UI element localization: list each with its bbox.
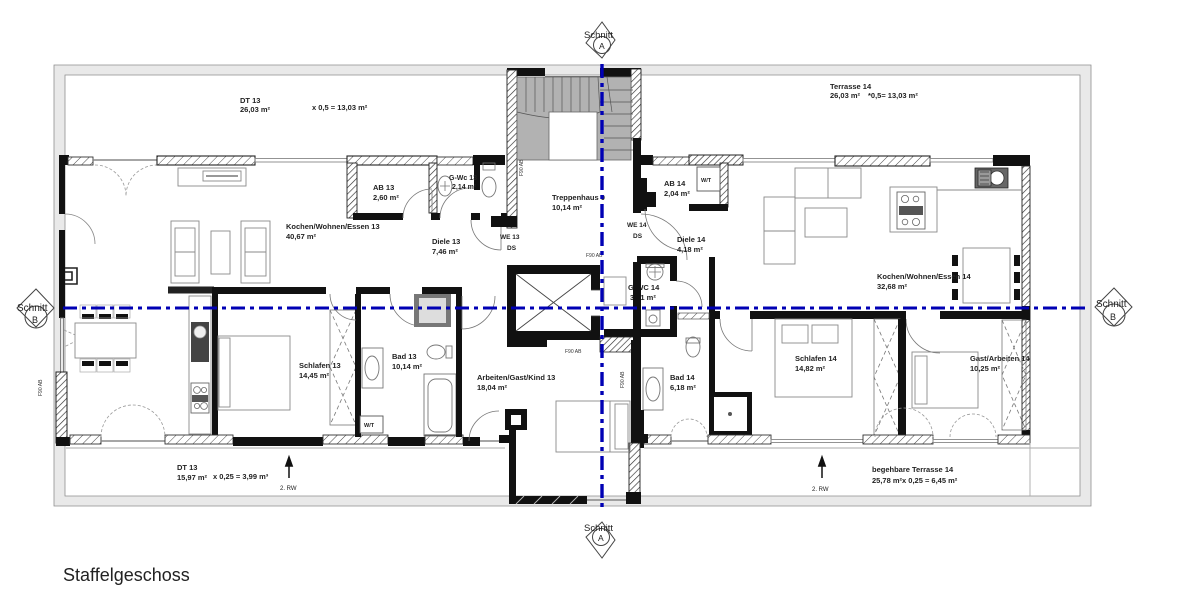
svg-text:Staffelgeschoss: Staffelgeschoss: [63, 565, 190, 585]
svg-text:7,46 m²: 7,46 m²: [432, 247, 458, 256]
svg-text:Diele 14: Diele 14: [677, 235, 706, 244]
svg-text:B: B: [32, 315, 38, 325]
svg-text:4,18 m²: 4,18 m²: [677, 245, 703, 254]
svg-text:Kochen/Wohnen/Essen 14: Kochen/Wohnen/Essen 14: [877, 272, 971, 281]
svg-text:G-WC 14: G-WC 14: [628, 283, 660, 292]
svg-text:Treppenhaus 0: Treppenhaus 0: [552, 193, 605, 202]
svg-text:32,68 m²: 32,68 m²: [877, 282, 908, 291]
svg-text:Schlafen 14: Schlafen 14: [795, 354, 838, 363]
svg-text:15,97 m²: 15,97 m²: [177, 473, 208, 482]
svg-text:2,04 m²: 2,04 m²: [664, 189, 690, 198]
svg-text:DS: DS: [507, 245, 517, 252]
svg-text:Arbeiten/Gast/Kind 13: Arbeiten/Gast/Kind 13: [477, 373, 555, 382]
svg-text:A: A: [598, 533, 604, 543]
svg-text:Gast/Arbeiten 14: Gast/Arbeiten 14: [970, 354, 1030, 363]
svg-text:26,03 m²: 26,03 m²: [240, 105, 271, 114]
svg-text:18,04 m²: 18,04 m²: [477, 383, 508, 392]
svg-text:x 0,5 = 13,03 m²: x 0,5 = 13,03 m²: [312, 103, 368, 112]
svg-text:2. RW: 2. RW: [812, 487, 829, 493]
svg-text:10,14 m²: 10,14 m²: [392, 362, 423, 371]
svg-text:A: A: [599, 41, 605, 51]
svg-text:W/T: W/T: [701, 178, 712, 184]
svg-text:25,78 m²x 0,25 = 6,45 m²: 25,78 m²x 0,25 = 6,45 m²: [872, 476, 958, 485]
svg-text:W/T: W/T: [364, 423, 375, 429]
svg-text:F90 AB: F90 AB: [38, 379, 44, 396]
svg-text:26,03 m²: 26,03 m²: [830, 91, 861, 100]
svg-text:2,14 m²: 2,14 m²: [452, 184, 477, 191]
svg-text:10,14 m²: 10,14 m²: [552, 203, 583, 212]
svg-text:F90 AB: F90 AB: [565, 349, 582, 355]
svg-text:Schnitt: Schnitt: [584, 30, 613, 41]
svg-text:begehbare Terrasse 14: begehbare Terrasse 14: [872, 465, 954, 474]
svg-text:WE 14: WE 14: [627, 222, 647, 229]
svg-text:G-Wc 13: G-Wc 13: [449, 175, 477, 182]
svg-text:AB 13: AB 13: [373, 183, 394, 192]
svg-text:6,18 m²: 6,18 m²: [670, 383, 696, 392]
svg-text:DS: DS: [633, 233, 643, 240]
svg-text:Terrasse 14: Terrasse 14: [830, 82, 872, 91]
svg-text:Kochen/Wohnen/Essen 13: Kochen/Wohnen/Essen 13: [286, 222, 380, 231]
svg-text:Bad 13: Bad 13: [392, 352, 417, 361]
svg-text:x 0,25 = 3,99 m³: x 0,25 = 3,99 m³: [213, 472, 269, 481]
svg-text:40,67 m²: 40,67 m²: [286, 232, 317, 241]
svg-text:2,60 m²: 2,60 m²: [373, 193, 399, 202]
svg-text:Schnitt: Schnitt: [17, 303, 48, 314]
svg-text:Diele 13: Diele 13: [432, 237, 460, 246]
svg-text:WE 13: WE 13: [500, 234, 520, 241]
svg-text:B: B: [1110, 312, 1116, 322]
svg-text:DT 13: DT 13: [177, 463, 197, 472]
svg-text:Bad 14: Bad 14: [670, 373, 695, 382]
svg-text:AB 14: AB 14: [664, 179, 686, 188]
svg-text:14,45 m²: 14,45 m²: [299, 371, 330, 380]
svg-text:Schlafen 13: Schlafen 13: [299, 361, 341, 370]
svg-text:14,82 m²: 14,82 m²: [795, 364, 826, 373]
svg-text:Schnitt: Schnitt: [1096, 299, 1127, 310]
svg-text:DT 13: DT 13: [240, 96, 260, 105]
svg-text:*0,5= 13,03 m²: *0,5= 13,03 m²: [868, 91, 918, 100]
svg-text:10,25 m²: 10,25 m²: [970, 364, 1001, 373]
svg-text:F90 AB: F90 AB: [519, 159, 525, 176]
svg-text:2. RW: 2. RW: [280, 486, 297, 492]
